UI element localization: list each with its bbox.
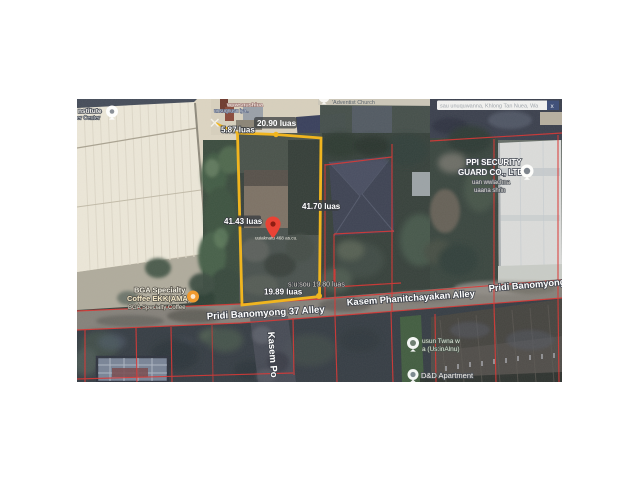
svg-text:20.90 luas: 20.90 luas: [257, 119, 297, 128]
svg-text:'Adventist Church: 'Adventist Church: [332, 100, 375, 106]
svg-text:BGA Specialty Coffee: BGA Specialty Coffee: [128, 305, 186, 311]
svg-text:unsuqnusu iya..: unsuqnusu iya..: [214, 109, 249, 115]
svg-text:a (Us:inAlnu): a (Us:inAlnu): [422, 346, 460, 353]
svg-text:D&D Apartment: D&D Apartment: [421, 371, 474, 380]
svg-text:sau unuquwanna, Khlong Tan Nue: sau unuquwanna, Khlong Tan Nuea, Wa: [440, 104, 539, 110]
svg-text:er Center: er Center: [77, 116, 100, 122]
svg-text:uuiaknatu 468 as.cu.: uuiaknatu 468 as.cu.: [255, 236, 297, 241]
svg-text:PPI SECURITY: PPI SECURITY: [466, 158, 522, 167]
svg-text:GUARD CO., LTD: GUARD CO., LTD: [458, 168, 523, 177]
svg-text:41.70 luas: 41.70 luas: [302, 202, 341, 211]
svg-text:nstitute: nstitute: [78, 108, 102, 115]
svg-text:41.43 luas: 41.43 luas: [224, 217, 263, 226]
svg-text:Coffee EKK(AMA): Coffee EKK(AMA): [127, 294, 191, 303]
svg-text:5.87 luas: 5.87 luas: [221, 126, 255, 135]
svg-text:uan wwlachna: uan wwlachna: [472, 180, 511, 186]
svg-text:usun Twna w: usun Twna w: [422, 338, 460, 345]
svg-text:19.89 luas: 19.89 luas: [264, 288, 303, 297]
svg-text:uaana shrin: uaana shrin: [474, 188, 505, 194]
